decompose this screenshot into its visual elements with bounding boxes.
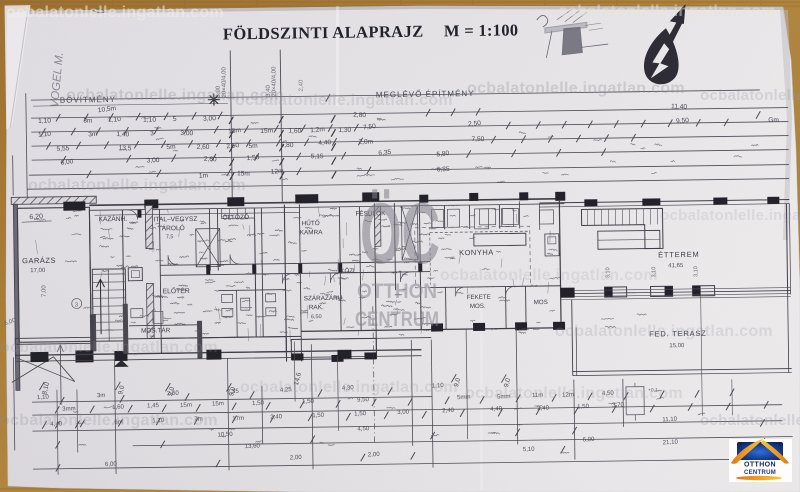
- svg-text:1,40: 1,40: [116, 131, 129, 139]
- svg-text:1,50: 1,50: [252, 399, 265, 407]
- svg-text:ocbalatonlelle.ingatlan.com: ocbalatonlelle.ingatlan.com: [555, 323, 773, 340]
- svg-text:3,00: 3,00: [147, 157, 160, 165]
- svg-text:9,50: 9,50: [676, 117, 690, 125]
- svg-text:4,40: 4,40: [318, 139, 332, 147]
- svg-text:7,50: 7,50: [471, 136, 484, 143]
- svg-text:5,10: 5,10: [523, 446, 536, 454]
- svg-text:3,00: 3,00: [180, 130, 193, 137]
- svg-text:15m: 15m: [180, 402, 192, 410]
- svg-text:2,50: 2,50: [468, 120, 482, 128]
- svg-text:17m: 17m: [232, 415, 244, 423]
- svg-text:1,60: 1,60: [112, 403, 125, 411]
- svg-text:2,80: 2,80: [353, 112, 366, 120]
- svg-text:KÖZL.: KÖZL.: [340, 268, 358, 275]
- svg-text:15,00: 15,00: [669, 343, 685, 349]
- svg-text:2,40: 2,40: [299, 79, 305, 91]
- svg-text:15m: 15m: [260, 127, 274, 135]
- svg-text:9,50: 9,50: [357, 396, 370, 404]
- svg-text:5m: 5m: [248, 143, 258, 150]
- svg-text:15m: 15m: [212, 400, 224, 408]
- svg-text:CENTRUM: CENTRUM: [744, 470, 776, 476]
- svg-text:MOS.TÁR: MOS.TÁR: [141, 325, 171, 334]
- svg-text:ELŐTÉR: ELŐTÉR: [162, 286, 189, 295]
- svg-text:1,50: 1,50: [577, 403, 590, 411]
- svg-text:ocbalatonlelle.ingatlan.com: ocbalatonlelle.ingatlan.com: [0, 412, 218, 429]
- svg-text:ÖC: ÖC: [360, 186, 440, 282]
- svg-text:KAZÁNH.: KAZÁNH.: [98, 214, 127, 223]
- svg-text:1,50: 1,50: [354, 410, 367, 418]
- svg-text:2,40: 2,40: [442, 407, 455, 415]
- svg-text:GARÁZS: GARÁZS: [22, 256, 56, 265]
- svg-text:6,35: 6,35: [437, 166, 450, 174]
- svg-text:6,00: 6,00: [105, 461, 118, 469]
- svg-text:2,0m: 2,0m: [359, 139, 374, 146]
- svg-text:41,65: 41,65: [668, 263, 684, 269]
- svg-text:11,10: 11,10: [662, 416, 678, 424]
- svg-text:3m: 3m: [97, 392, 106, 399]
- svg-text:ocbalatonlelle.ingatlan.com: ocbalatonlelle.ingatlan.com: [6, 4, 224, 21]
- svg-text:13,60: 13,60: [245, 442, 261, 450]
- svg-text:ocbalatonlelle.ingatlan.com: ocbalatonlelle.ingatlan.com: [700, 87, 800, 104]
- svg-text:ocbalatonlelle.ingatlan.com: ocbalatonlelle.ingatlan.com: [465, 385, 683, 402]
- svg-text:ocbalatonlelle.ingatlan.com: ocbalatonlelle.ingatlan.com: [467, 80, 685, 97]
- svg-text:OTTHON: OTTHON: [357, 280, 437, 303]
- svg-text:Gm: Gm: [768, 117, 779, 124]
- svg-text:1,2m: 1,2m: [310, 126, 326, 134]
- svg-text:6,00: 6,00: [582, 436, 595, 444]
- svg-text:1,10: 1,10: [37, 393, 50, 401]
- svg-text:6,50: 6,50: [311, 314, 322, 320]
- svg-text:ocbalatonlelle.ingatlan.com: ocbalatonlelle.ingatlan.com: [660, 207, 800, 224]
- svg-text:3,70: 3,70: [612, 401, 625, 409]
- svg-text:7,00: 7,00: [41, 285, 47, 297]
- svg-text:1,45: 1,45: [147, 402, 160, 410]
- svg-text:5,55: 5,55: [56, 145, 69, 153]
- svg-text:ocbalatonlelle.ingatlan.com: ocbalatonlelle.ingatlan.com: [0, 339, 218, 356]
- svg-text:1,10: 1,10: [38, 117, 51, 125]
- svg-text:FÖLDSZINTI ALAPRAJZ: FÖLDSZINTI ALAPRAJZ: [223, 22, 424, 44]
- svg-text:KAMRA: KAMRA: [300, 229, 324, 236]
- svg-text:ÉTTEREM: ÉTTEREM: [658, 250, 700, 260]
- svg-text:3m: 3m: [83, 117, 93, 124]
- svg-text:10,50: 10,50: [217, 431, 233, 439]
- svg-text:ocbalatonlelle.ingatlan.com: ocbalatonlelle.ingatlan.com: [700, 412, 800, 429]
- svg-text:ocbalatonlelle.ingatlan.com: ocbalatonlelle.ingatlan.com: [440, 267, 658, 284]
- svg-text:ocbalatonlelle.ingatlan.com: ocbalatonlelle.ingatlan.com: [28, 177, 246, 194]
- svg-text:CENTRUM: CENTRUM: [355, 308, 439, 331]
- svg-text:5,15: 5,15: [311, 153, 324, 160]
- svg-text:7,5: 7,5: [166, 234, 174, 240]
- svg-text:FEKETE: FEKETE: [467, 294, 491, 301]
- svg-text:1,30: 1,30: [338, 127, 351, 134]
- svg-text:2,00: 2,00: [368, 451, 381, 459]
- svg-text:RAK.: RAK.: [309, 304, 324, 311]
- svg-text:HŰTŐ: HŰTŐ: [302, 218, 320, 227]
- svg-text:MOS.: MOS.: [470, 303, 486, 310]
- svg-text:2,35: 2,35: [227, 388, 240, 396]
- svg-text:2,00: 2,00: [290, 454, 303, 462]
- svg-text:21,10: 21,10: [662, 439, 678, 447]
- svg-text:KONYHA: KONYHA: [459, 248, 494, 257]
- svg-text:ocbalatonlelle.ingatlan.com: ocbalatonlelle.ingatlan.com: [235, 92, 453, 109]
- svg-text:1,50: 1,50: [312, 412, 325, 420]
- svg-text:MOS: MOS: [534, 299, 548, 306]
- svg-text:ITAL–VEGYSZ: ITAL–VEGYSZ: [154, 216, 198, 224]
- svg-text:2,60: 2,60: [204, 156, 217, 164]
- svg-text:17,00: 17,00: [30, 268, 46, 274]
- svg-text:ocbalatonlelle.ingatlan.com: ocbalatonlelle.ingatlan.com: [240, 379, 458, 396]
- svg-text:TÁROLÓ: TÁROLÓ: [158, 223, 185, 232]
- svg-text:2,60: 2,60: [167, 390, 180, 398]
- svg-text:2,60: 2,60: [197, 144, 210, 151]
- svg-text:4,50: 4,50: [357, 425, 370, 433]
- svg-text:11,40: 11,40: [671, 103, 688, 111]
- svg-text:3,10: 3,10: [693, 266, 699, 277]
- svg-text:3,00: 3,00: [397, 408, 410, 416]
- svg-text:1,60: 1,60: [288, 128, 301, 136]
- svg-text:OTTHON: OTTHON: [744, 462, 776, 469]
- svg-text:3,00: 3,00: [203, 115, 216, 123]
- svg-text:13,5: 13,5: [118, 145, 131, 153]
- svg-text:M = 1:100: M = 1:100: [444, 20, 519, 40]
- svg-text:ocbalatonlelle.ingatlan.com: ocbalatonlelle.ingatlan.com: [558, 3, 776, 20]
